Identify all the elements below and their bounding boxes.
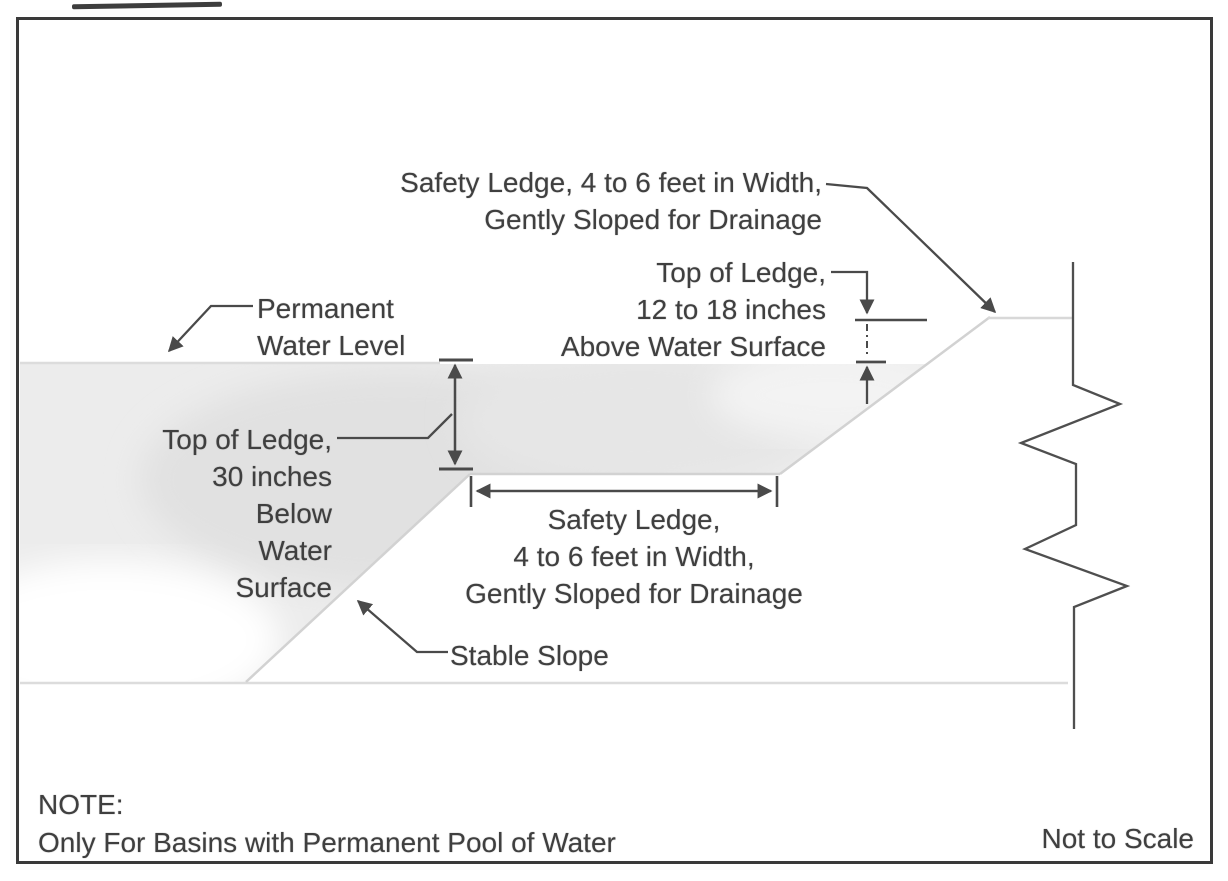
label-line: Not to Scale	[1041, 820, 1194, 857]
label-line: Gently Sloped for Drainage	[400, 201, 822, 238]
label-line: Above Water Surface	[561, 328, 826, 365]
label-line: 12 to 18 inches	[561, 291, 826, 328]
label-permanent-water-level: Permanent Water Level	[257, 290, 405, 364]
scanned-diagram-page: Safety Ledge, 4 to 6 feet in Width, Gent…	[0, 0, 1228, 881]
label-line: Below	[162, 495, 332, 532]
label-line: 30 inches	[162, 458, 332, 495]
label-stable-slope: Stable Slope	[450, 637, 609, 674]
label-line: Stable Slope	[450, 637, 609, 674]
scan-artifact	[72, 2, 222, 10]
note-heading: NOTE:	[38, 786, 616, 824]
scale-label: Not to Scale	[1041, 820, 1194, 857]
note-body: Only For Basins with Permanent Pool of W…	[38, 824, 616, 862]
label-line: 4 to 6 feet in Width,	[434, 538, 834, 575]
label-line: Safety Ledge,	[434, 501, 834, 538]
label-line: Water Level	[257, 327, 405, 364]
label-top-of-ledge-below-water: Top of Ledge, 30 inches Below Water Surf…	[162, 421, 332, 606]
label-safety-ledge-center: Safety Ledge, 4 to 6 feet in Width, Gent…	[434, 501, 834, 612]
label-line: Gently Sloped for Drainage	[434, 575, 834, 612]
label-line: Top of Ledge,	[162, 421, 332, 458]
note-block: NOTE: Only For Basins with Permanent Poo…	[38, 786, 616, 862]
label-top-of-ledge-above-water: Top of Ledge, 12 to 18 inches Above Wate…	[561, 254, 826, 365]
label-safety-ledge-top: Safety Ledge, 4 to 6 feet in Width, Gent…	[400, 164, 822, 238]
label-line: Surface	[162, 569, 332, 606]
label-line: Water	[162, 532, 332, 569]
label-line: Permanent	[257, 290, 405, 327]
label-line: Top of Ledge,	[561, 254, 826, 291]
label-line: Safety Ledge, 4 to 6 feet in Width,	[400, 164, 822, 201]
